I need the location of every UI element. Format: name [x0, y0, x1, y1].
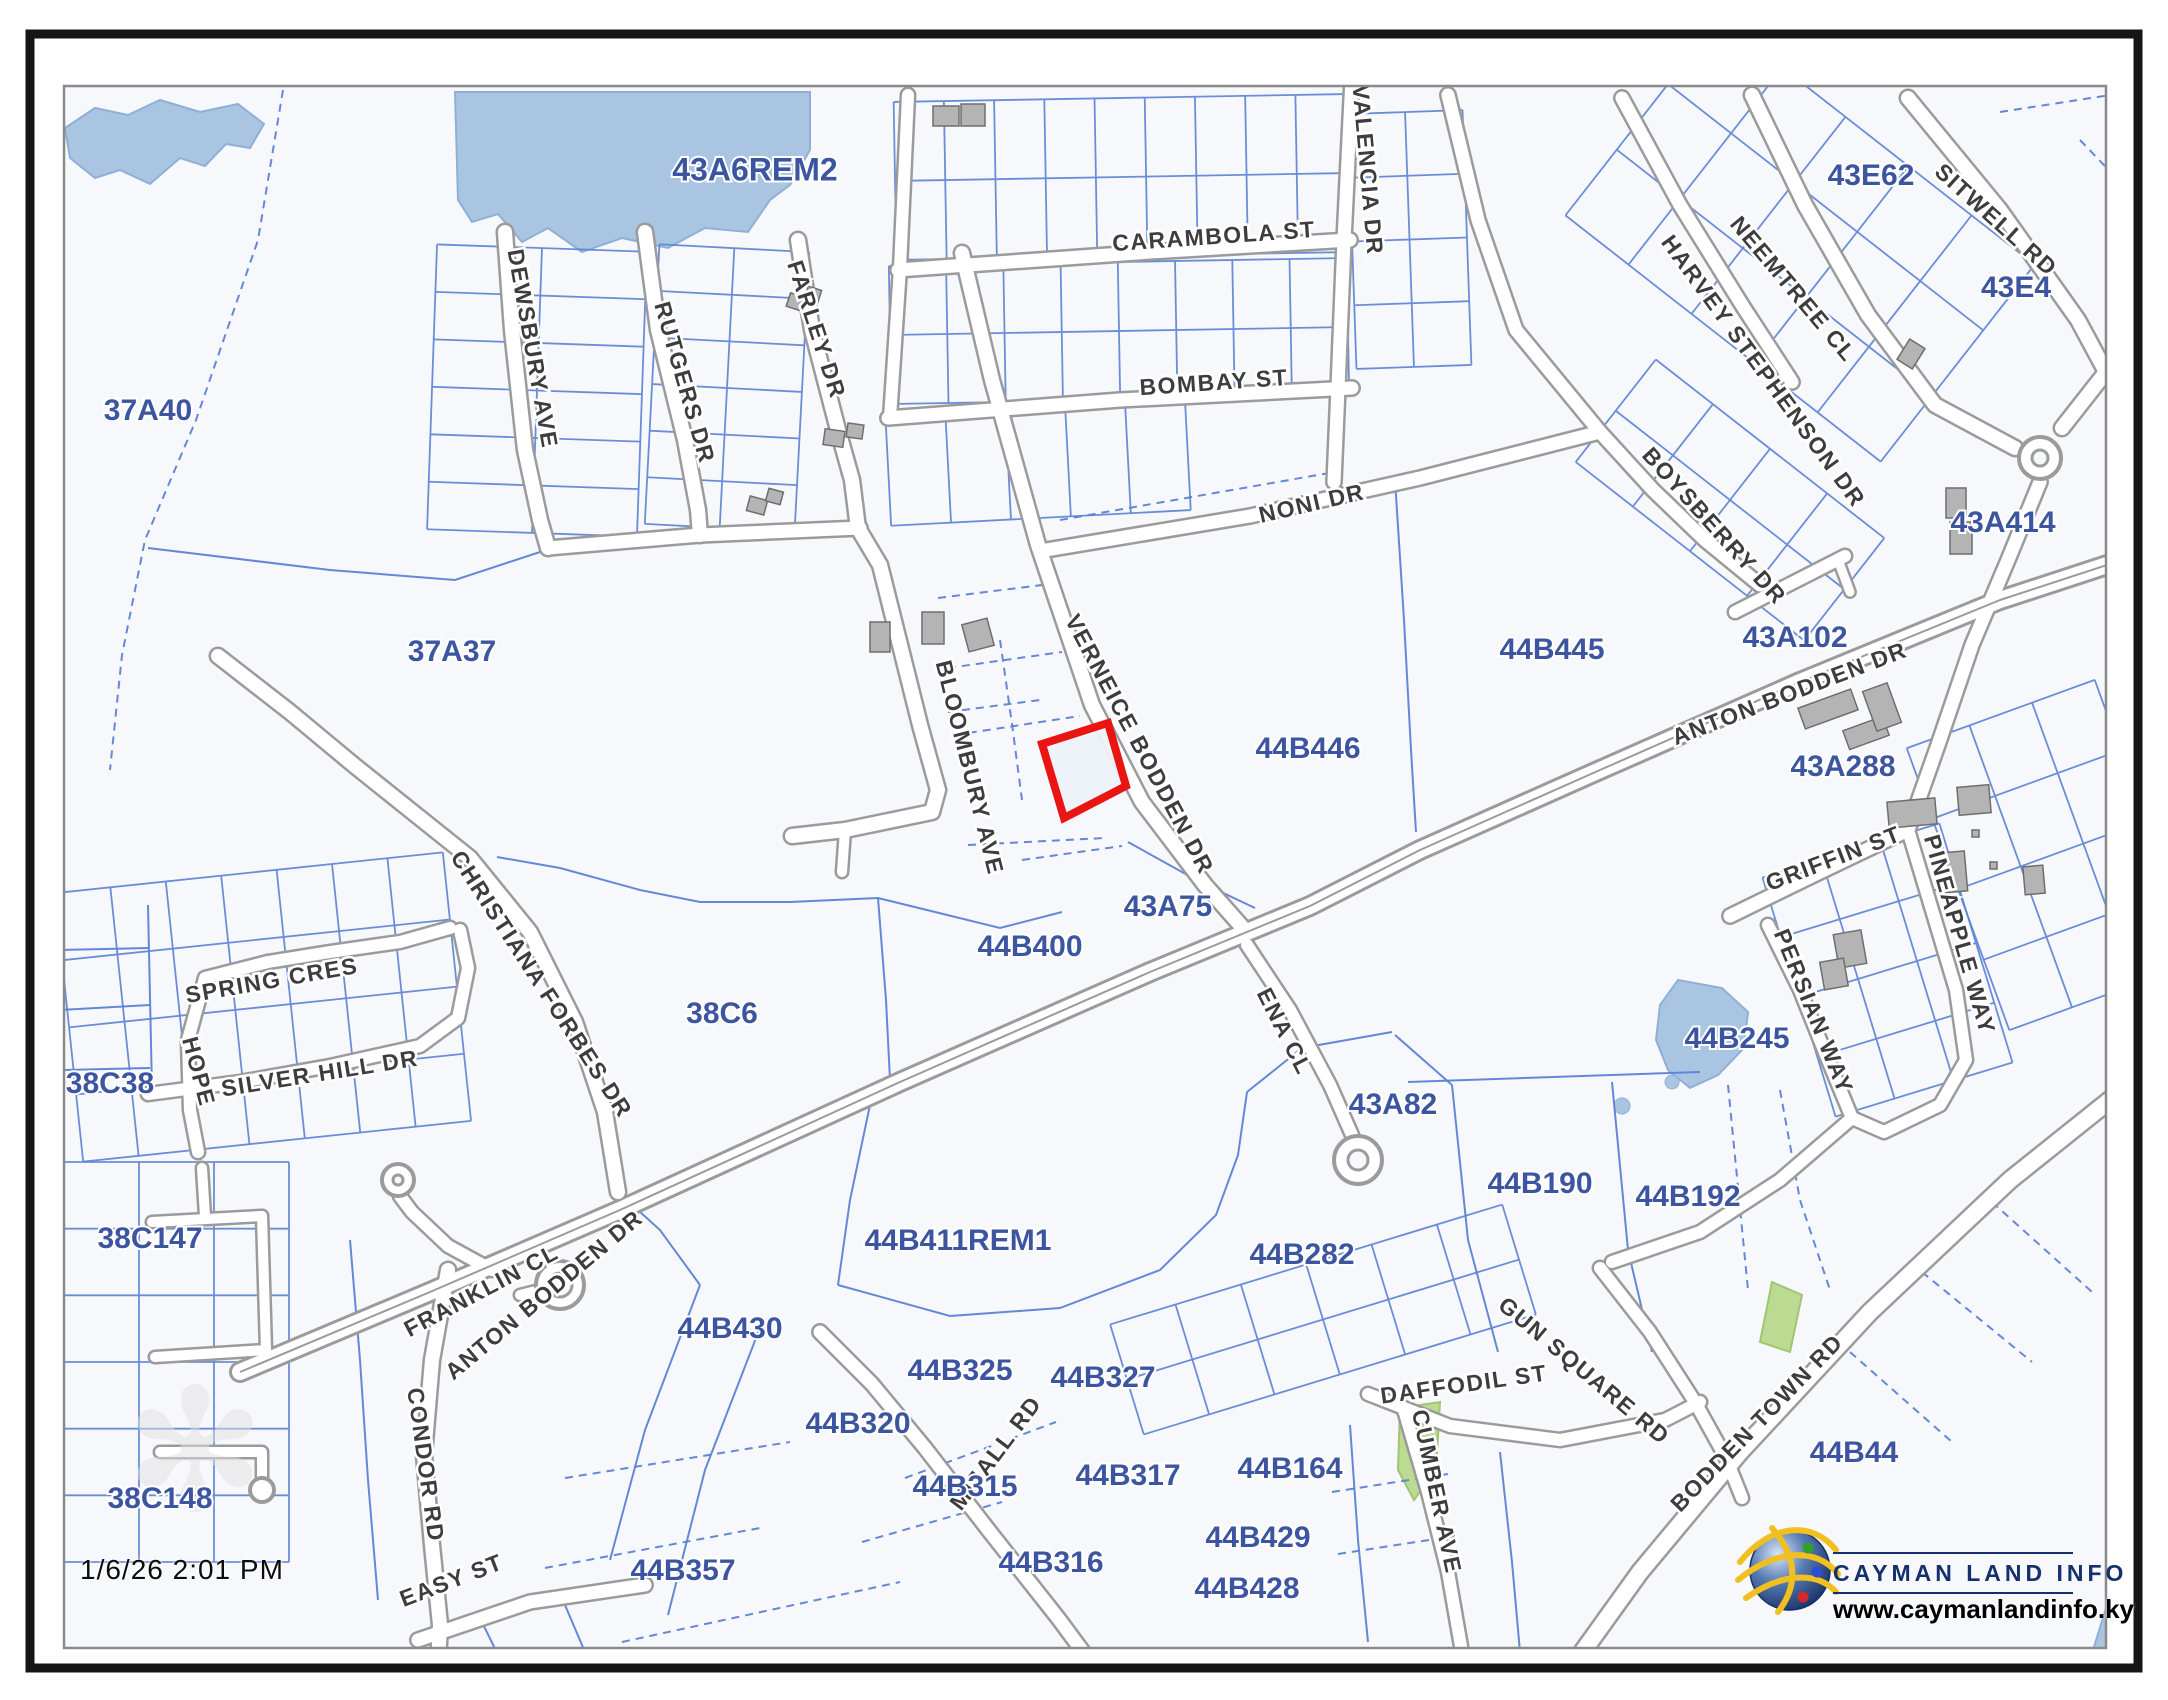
map-layers: ✻DEWSBURY AVERUTGERS DRFARLEY DRCARAMBOL… [55, 18, 2168, 1700]
road [262, 1216, 266, 1350]
parcel-label: 38C147 [97, 1222, 202, 1255]
cayman-land-info-logo-url: www.caymanlandinfo.ky [1833, 1594, 2073, 1625]
globe-dot-green [1803, 1543, 1814, 1554]
roundabout-island [2032, 450, 2048, 466]
building-footprint [922, 612, 944, 644]
watermark-flower-icon: ✻ [124, 1353, 266, 1551]
cadastral-map-canvas[interactable]: ✻DEWSBURY AVERUTGERS DRFARLEY DRCARAMBOL… [0, 0, 2168, 1700]
road [842, 830, 845, 872]
timestamp: 1/6/26 2:01 PM [80, 1554, 284, 1586]
parcel-label: 44B282 [1249, 1238, 1354, 1271]
pond [1665, 1075, 1679, 1089]
parcel-label: 43A82 [1349, 1088, 1437, 1121]
parcel-label: 44B446 [1255, 732, 1360, 765]
building-footprint [1972, 830, 1979, 837]
parcel-label: 43E4 [1981, 271, 2051, 304]
cayman-land-info-logo-title: CAYMAN LAND INFO [1833, 1552, 2073, 1594]
roundabout-island [1348, 1150, 1368, 1170]
parcel-label: 44B327 [1050, 1361, 1155, 1394]
parcel-label: 44B190 [1487, 1167, 1592, 1200]
parcel-label: 44B245 [1684, 1022, 1789, 1055]
pond [1614, 1098, 1630, 1114]
parcel-label: 38C6 [686, 997, 758, 1030]
parcel-label: 44B315 [912, 1470, 1017, 1503]
map-export-page: ✻DEWSBURY AVERUTGERS DRFARLEY DRCARAMBOL… [0, 0, 2168, 1700]
building-footprint [1990, 862, 1997, 869]
globe-dot-red [1798, 1592, 1809, 1603]
parcel-label: 38C148 [107, 1482, 212, 1515]
parcel-label: 44B44 [1810, 1436, 1899, 1469]
building-footprint [961, 104, 985, 126]
building-footprint [1820, 958, 1848, 990]
globe-dot-blue [1812, 1567, 1823, 1578]
parcel-label: 43A414 [1950, 506, 2055, 539]
building-footprint [846, 423, 864, 439]
building-footprint [2023, 865, 2045, 895]
parcel-label: 44B428 [1194, 1572, 1299, 1605]
parcel-label: 37A40 [104, 394, 192, 427]
parcel-label: 44B325 [907, 1354, 1012, 1387]
building-footprint [1957, 785, 1991, 816]
parcel-label: 44B411REM1 [865, 1224, 1052, 1257]
parcel-label: 43A102 [1742, 621, 1847, 654]
parcel-label: 43A75 [1124, 890, 1212, 923]
parcel-label: 44B445 [1499, 633, 1604, 666]
parcel-label: 38C38 [66, 1067, 154, 1100]
parcel-label: 37A37 [408, 635, 496, 668]
building-footprint [870, 622, 890, 652]
building-footprint [766, 488, 784, 504]
parcel-label: 44B317 [1075, 1459, 1180, 1492]
parcel-label: 44B192 [1635, 1180, 1740, 1213]
parcel-label: 44B164 [1237, 1452, 1342, 1485]
roundabout-island [393, 1175, 403, 1185]
parcel-label: 43A6REM2 [672, 151, 837, 187]
parcel-label: 44B320 [805, 1407, 910, 1440]
parcel-label: 44B357 [630, 1554, 735, 1587]
parcel-label: 43E62 [1828, 159, 1915, 192]
parcel-label: 44B316 [998, 1546, 1103, 1579]
parcel-label: 44B429 [1205, 1521, 1310, 1554]
parcel-label: 44B400 [977, 930, 1082, 963]
building-footprint [823, 429, 845, 448]
building-footprint [933, 106, 959, 126]
parcel-label: 43A288 [1790, 750, 1895, 783]
parcel-label: 44B430 [677, 1312, 782, 1345]
road [202, 1168, 205, 1216]
